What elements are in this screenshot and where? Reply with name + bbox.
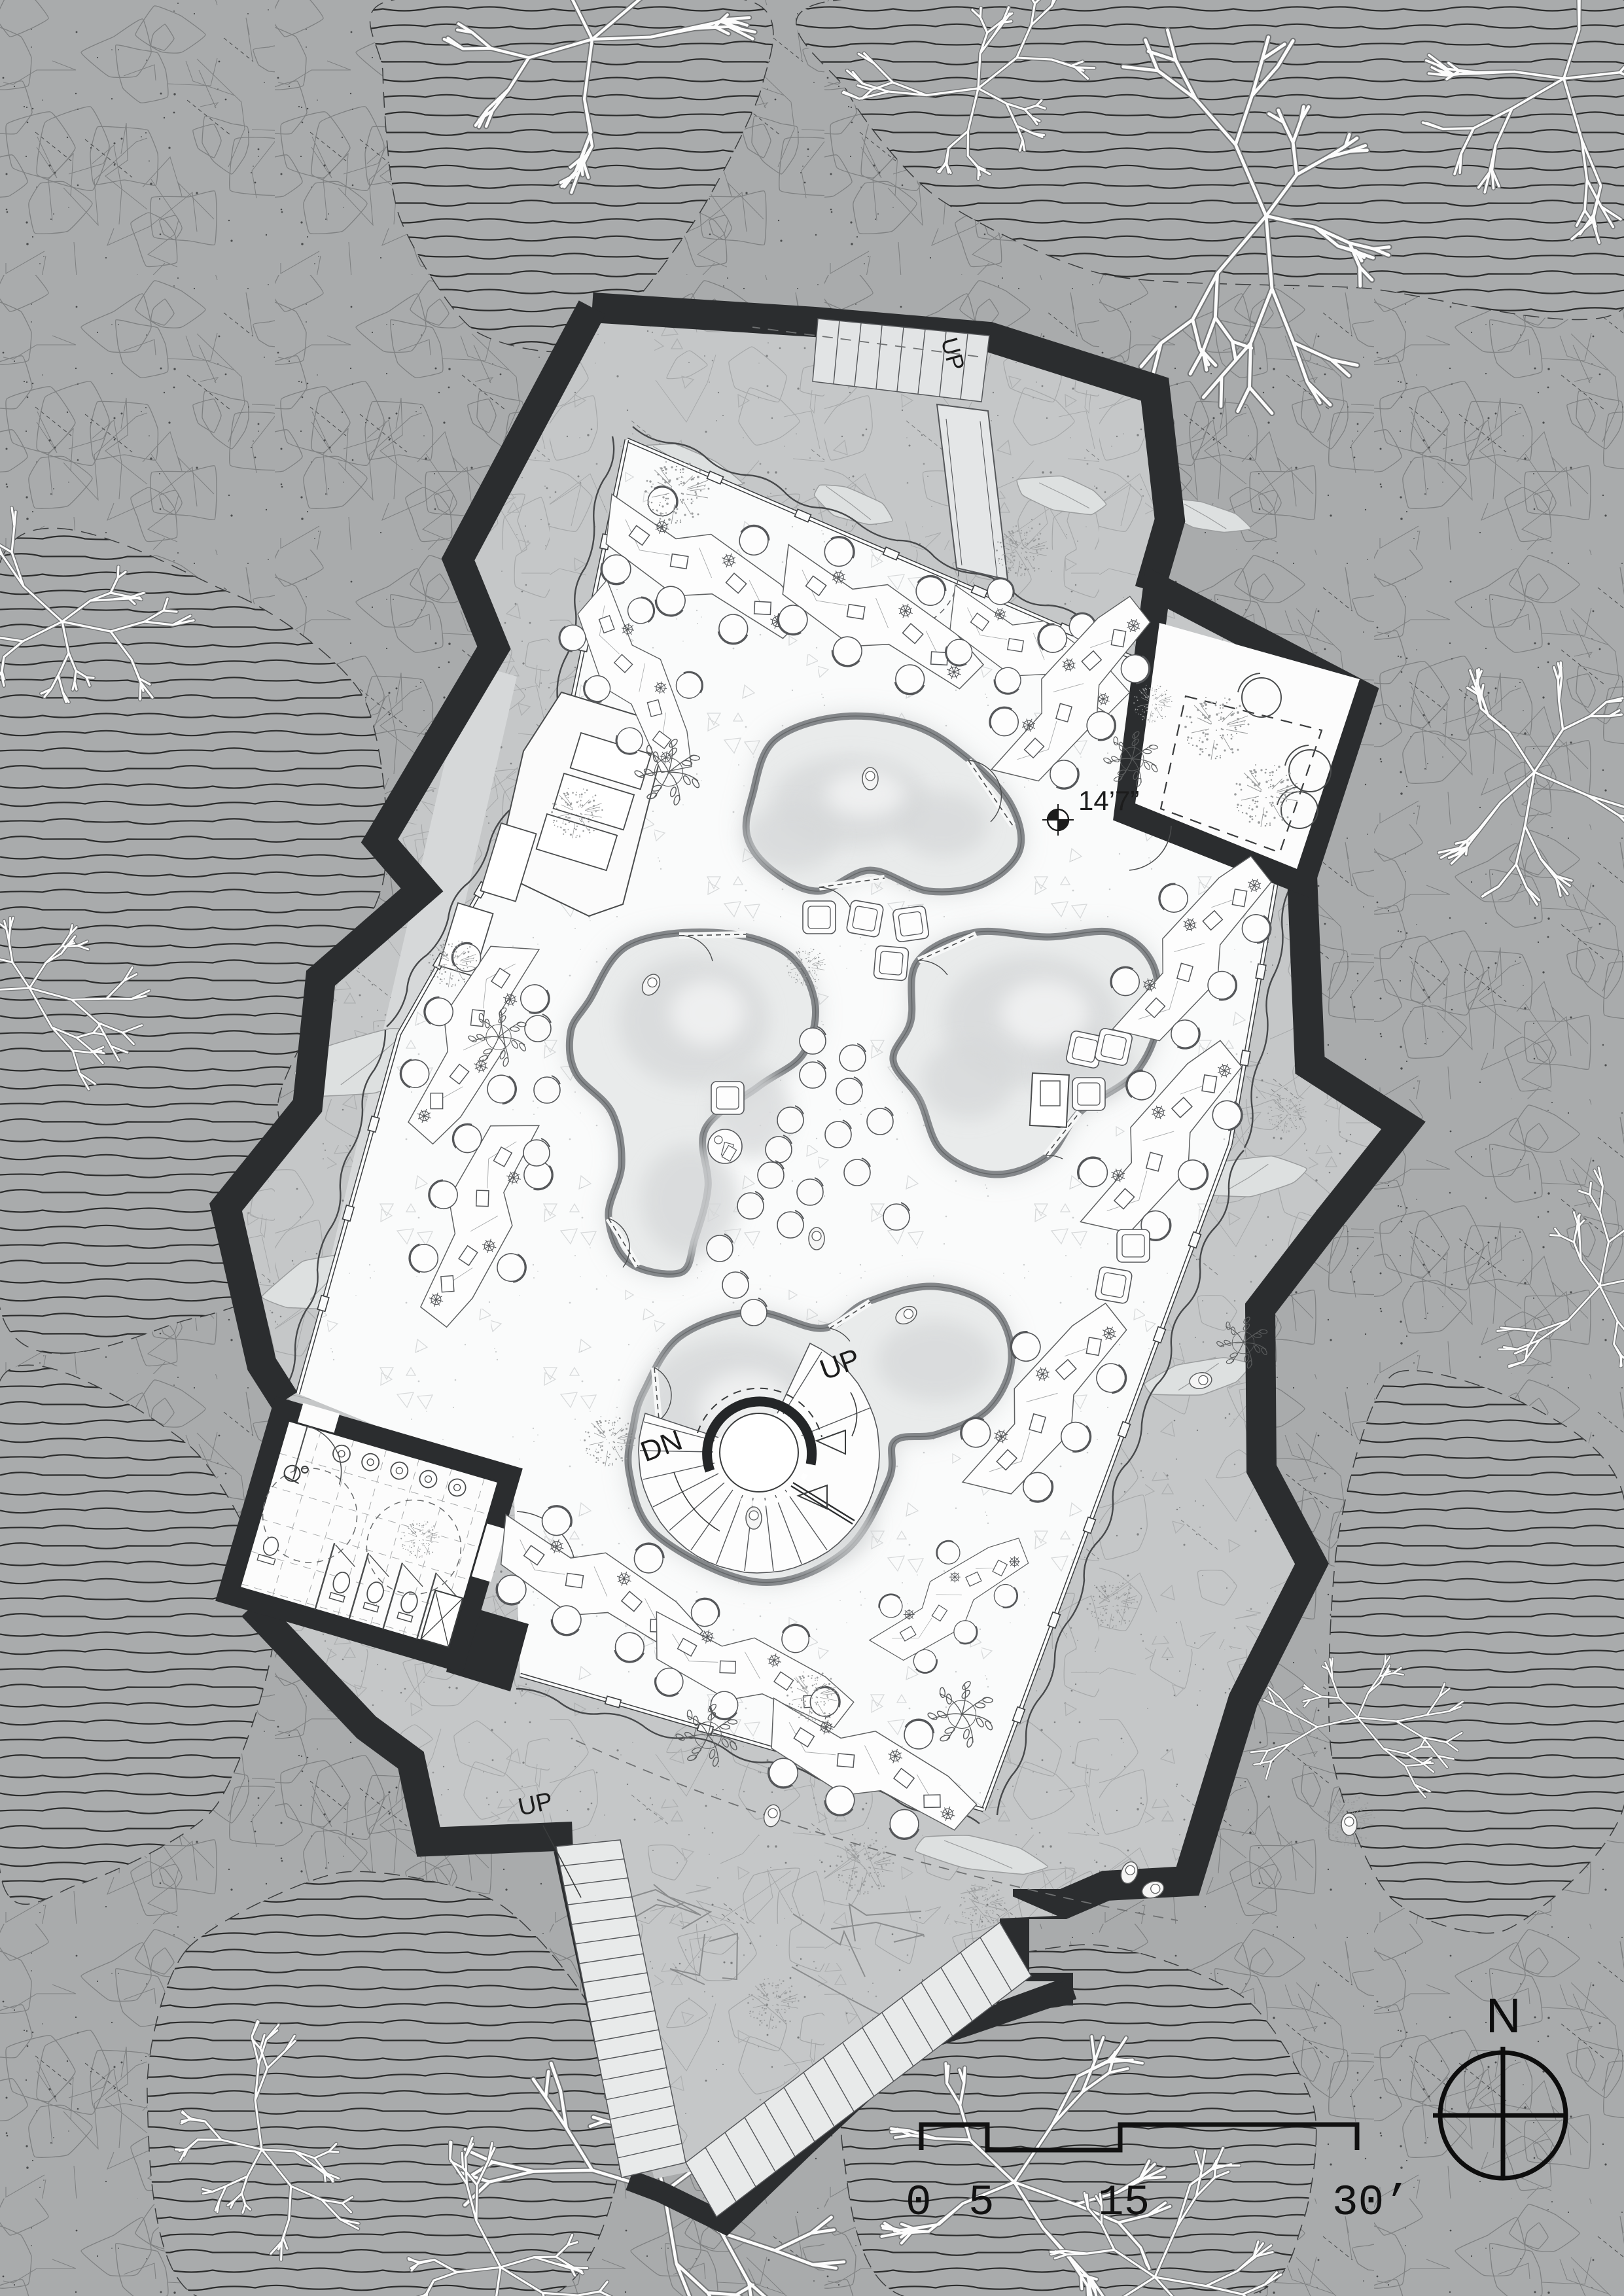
svg-text:15: 15	[1098, 2178, 1150, 2227]
svg-text:5: 5	[968, 2178, 995, 2227]
svg-text:N: N	[1486, 1988, 1521, 2043]
svg-text:14’7”: 14’7”	[1078, 785, 1139, 816]
svg-text:0: 0	[906, 2178, 932, 2227]
svg-text:30’: 30’	[1332, 2178, 1410, 2227]
